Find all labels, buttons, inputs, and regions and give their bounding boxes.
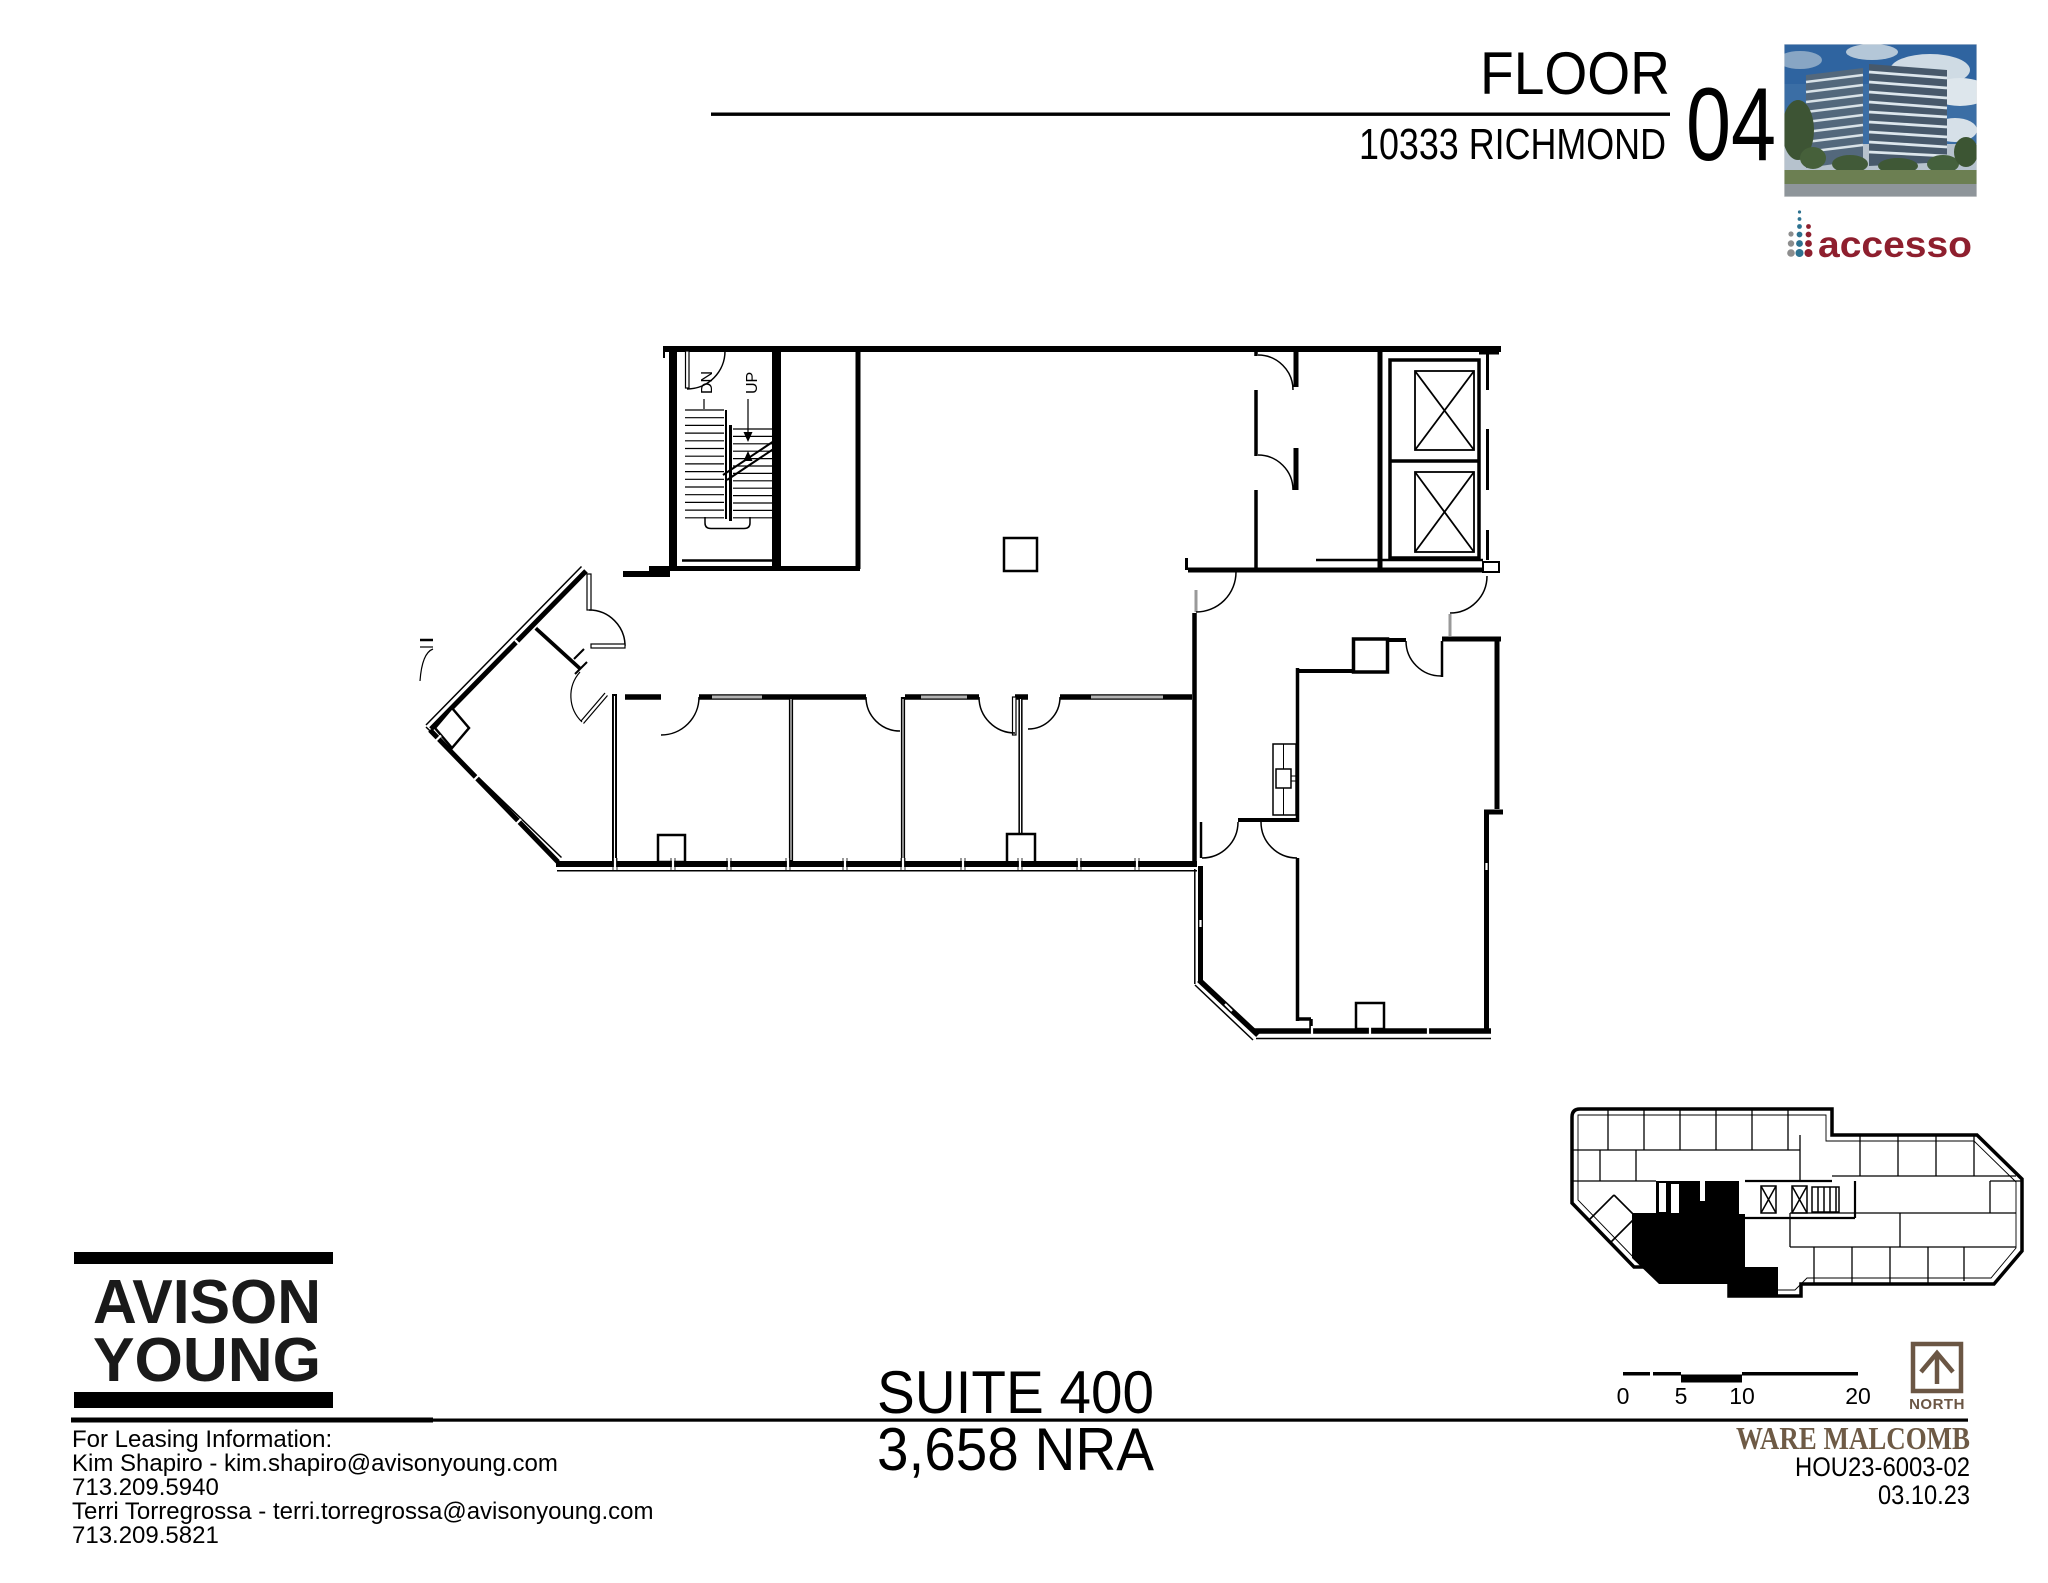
svg-text:713.209.5940: 713.209.5940 (72, 1474, 219, 1501)
svg-text:NORTH: NORTH (1909, 1396, 1965, 1413)
svg-text:Terri Torregrossa - terri.torr: Terri Torregrossa - terri.torregrossa@av… (72, 1498, 653, 1525)
svg-text:accesso: accesso (1818, 224, 1972, 265)
svg-text:04: 04 (1686, 67, 1776, 183)
svg-text:0: 0 (1617, 1383, 1630, 1409)
svg-text:DN: DN (699, 371, 716, 394)
svg-text:20: 20 (1845, 1383, 1871, 1409)
svg-text:WARE MALCOMB: WARE MALCOMB (1736, 1420, 1970, 1456)
svg-text:FLOOR: FLOOR (1480, 40, 1670, 107)
svg-text:713.209.5821: 713.209.5821 (72, 1522, 219, 1549)
svg-text:Kim Shapiro - kim.shapiro@avis: Kim Shapiro - kim.shapiro@avisonyoung.co… (72, 1450, 558, 1477)
svg-text:03.10.23: 03.10.23 (1878, 1480, 1970, 1510)
svg-text:5: 5 (1675, 1383, 1688, 1409)
svg-text:For Leasing Information:: For Leasing Information: (72, 1426, 332, 1453)
svg-text:YOUNG: YOUNG (93, 1326, 321, 1395)
svg-text:HOU23-6003-02: HOU23-6003-02 (1795, 1452, 1970, 1482)
svg-text:10333 RICHMOND: 10333 RICHMOND (1359, 120, 1666, 169)
svg-text:UP: UP (744, 372, 761, 394)
svg-text:3,658 NRA: 3,658 NRA (877, 1416, 1154, 1483)
svg-text:10: 10 (1729, 1383, 1755, 1409)
